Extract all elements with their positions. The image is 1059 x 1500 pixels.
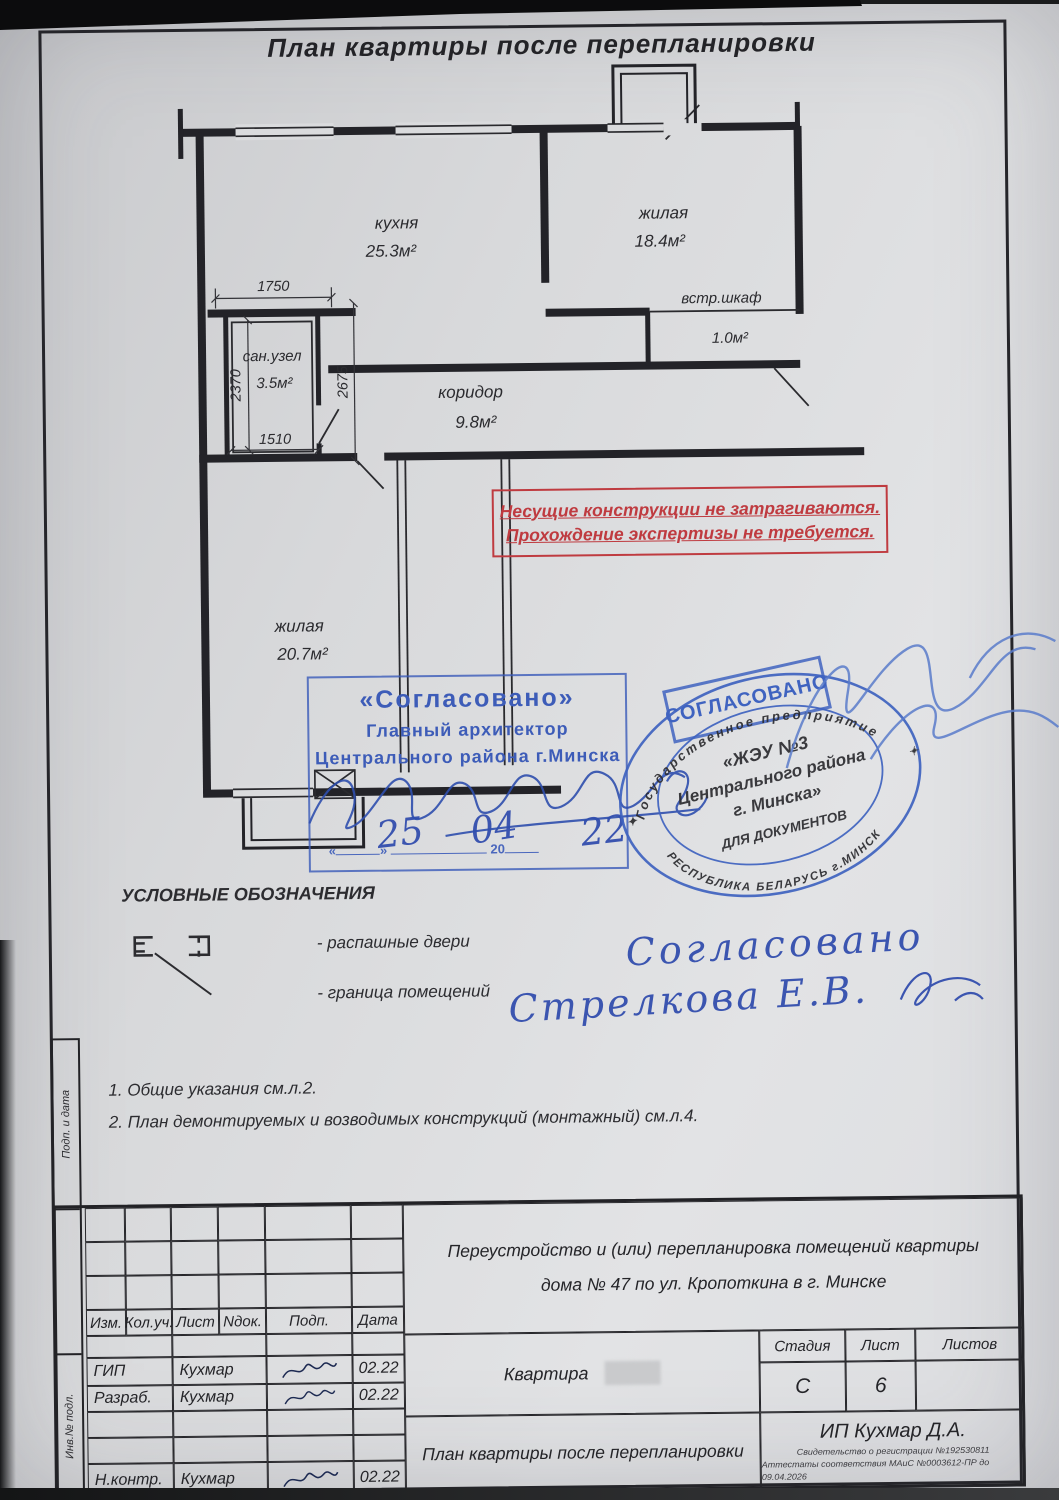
room-living2-name: жилая (273, 616, 323, 636)
side-label-podp-data: Подп. и дата (60, 1090, 73, 1159)
tb-stage-label: Стадия (759, 1329, 845, 1362)
tb-cert-line2: Аттестаты соответствия МАиС №0003612-ПР … (762, 1456, 1025, 1483)
legend-door-symbol (125, 924, 306, 1016)
tb-signature-razrab (267, 1383, 353, 1410)
tb-header-podp: Подп. (266, 1307, 352, 1334)
legend-item-boundary: - граница помещений (317, 981, 490, 1003)
title-block: Изм. Кол.уч. Лист Nдок. Подп. Дата ГИП К… (53, 1194, 1026, 1497)
tb-header-list: Лист (172, 1309, 219, 1336)
tb-date-gip: 02.22 (352, 1354, 404, 1383)
tb-sheet-label: Лист (845, 1329, 915, 1362)
room-corridor-name: коридор (438, 382, 503, 402)
tb-signature-gip (266, 1355, 352, 1384)
tb-role-gip: ГИП (86, 1357, 172, 1386)
red-stamp: Несущие конструкции не затрагиваются. Пр… (492, 485, 889, 557)
tb-role-razrab: Разраб. (87, 1385, 173, 1412)
tb-sheet-value: 6 (846, 1361, 917, 1412)
side-cell-1: Подп. и дата (53, 1040, 80, 1210)
room-kitchen-area: 25.3м² (365, 241, 418, 261)
tb-sheets-value (916, 1359, 1026, 1410)
room-closet-area: 1.0м² (712, 329, 749, 346)
handwritten-flourish (893, 955, 988, 1016)
handwritten-note: Согласовано Стрелкова Е.В. (505, 910, 1010, 1037)
room-living2-area: 20.7м² (276, 644, 329, 664)
room-living1-name: жилая (638, 203, 688, 223)
dim-2370: 2370 (228, 369, 244, 402)
room-bathroom-area: 3.5м² (256, 375, 293, 392)
tb-name-gip: Кухмар (172, 1356, 266, 1385)
door-swing-bathroom (319, 409, 339, 443)
red-stamp-line1: Несущие конструкции не затрагиваются. (500, 497, 881, 522)
room-closet-name: встр.шкаф (681, 289, 762, 307)
tb-date-razrab: 02.22 (353, 1382, 405, 1409)
dim-1750: 1750 (257, 279, 289, 295)
red-stamp-line2: Прохождение экспертизы не требуется. (506, 521, 875, 546)
photo-edge-bottom (0, 1488, 1059, 1500)
room-living1-area: 18.4м² (635, 231, 687, 251)
tb-header-koluch: Кол.уч. (126, 1309, 172, 1336)
round-stamp-arc-bottom: РЕСПУБЛИКА БЕЛАРУСЬ г.МИНСК (663, 801, 891, 917)
tb-header-ndok: Nдок. (219, 1308, 266, 1335)
tb-company: ИП Кухмар Д.А. Свидетельство о регистрац… (760, 1409, 1026, 1489)
room-kitchen-name: кухня (375, 213, 419, 232)
svg-text:РЕСПУБЛИКА БЕЛАРУСЬ г.МИНСК: РЕСПУБЛИКА БЕЛАРУСЬ г.МИНСК (663, 801, 891, 917)
dim-2675: 2675 (335, 365, 351, 399)
tb-name-razrab: Кухмар (173, 1384, 267, 1411)
tb-project-line2: дома № 47 по ул. Кропоткина в г. Минске (541, 1264, 887, 1303)
tb-project-line1: Переустройство и (или) перепланировка по… (447, 1228, 979, 1269)
redacted-apartment-number (604, 1361, 660, 1386)
room-corridor-area: 9.8м² (455, 412, 497, 431)
tb-company-name: ИП Кухмар Д.А. (820, 1416, 966, 1446)
flourish-signature (773, 607, 1059, 800)
photo-background: План квартиры после перепланировки (0, 0, 1059, 1500)
dim-1510: 1510 (259, 432, 291, 448)
room-bathroom-name: сан.узел (243, 348, 303, 366)
tb-object-label: Квартира (504, 1363, 589, 1385)
tb-header-izm: Изм. (86, 1310, 126, 1336)
photo-edge-left (0, 940, 16, 1500)
tb-stage-value: С (760, 1361, 847, 1412)
drawing-frame: План квартиры после перепланировки (38, 20, 1023, 1495)
legend-title: УСЛОВНЫЕ ОБОЗНАЧЕНИЯ (121, 883, 375, 907)
notes: 1. Общие указания см.л.2. 2. План демонт… (108, 1068, 698, 1139)
tb-drawing-title: План квартиры после перепланировки (405, 1412, 761, 1493)
door-swing-entrance (774, 368, 808, 406)
tb-object: Квартира (404, 1330, 760, 1416)
door-swing-room (357, 461, 383, 489)
note-2: 2. План демонтируемых и возводимых конст… (109, 1100, 699, 1139)
tb-project: Переустройство и (или) перепланировка по… (403, 1197, 1024, 1334)
legend-item-doors: - распашные двери (317, 932, 470, 954)
tb-sheets-label: Листов (915, 1327, 1024, 1360)
tb-header-data: Дата (352, 1306, 404, 1333)
handwritten-word2: Стрелкова Е.В. (508, 967, 870, 1031)
